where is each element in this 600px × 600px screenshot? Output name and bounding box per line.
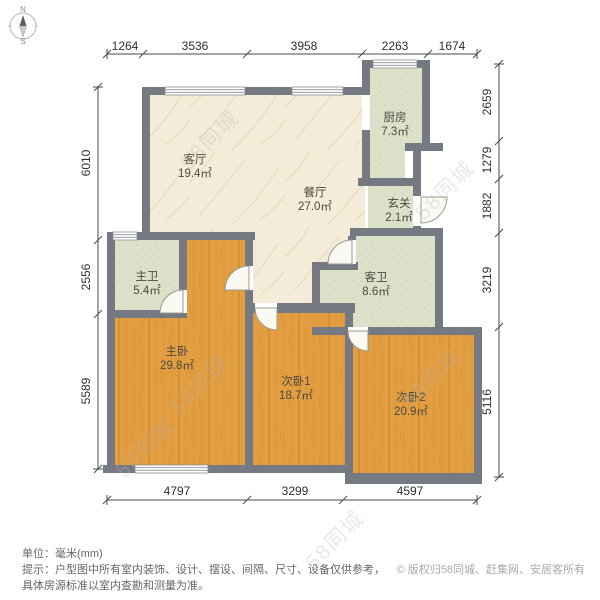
wall-segment — [362, 60, 370, 95]
dim-top-1: 1264 — [112, 39, 139, 53]
floor-kitchen-lower — [370, 143, 405, 178]
dim-bottom-2: 3299 — [282, 484, 309, 498]
floor-bedroom2 — [253, 313, 345, 465]
footer-copyright: © 版权归58同城、赶集网、安居客所有 — [397, 562, 585, 576]
compass-south-label: S — [20, 37, 25, 46]
wall-segment — [350, 228, 443, 236]
footer-unit-line: 单位：毫米(mm) — [22, 546, 103, 560]
wall-segment — [312, 327, 348, 335]
compass-icon: N S — [8, 5, 38, 46]
wall-segment — [362, 130, 370, 186]
dim-left-2: 2556 — [79, 263, 93, 290]
dim-left-1: 6010 — [79, 149, 93, 176]
floor-guest-bath-ext — [320, 270, 356, 303]
dim-left-3: 5589 — [79, 377, 93, 404]
wall-segment — [312, 262, 320, 313]
room-label-kitchen: 厨房 — [384, 111, 407, 124]
room-area-bedroom2: 18.7㎡ — [279, 389, 313, 402]
wall-segment — [413, 151, 421, 196]
kitchen-opening — [362, 95, 370, 130]
room-area-master-bath: 5.4㎡ — [133, 284, 161, 297]
dim-top-4: 2263 — [382, 39, 409, 53]
wall-segment — [368, 327, 482, 335]
window — [373, 60, 417, 68]
compass-north-label: N — [20, 5, 26, 14]
wall-segment — [245, 290, 253, 473]
dim-right-2: 1279 — [480, 146, 494, 173]
dim-right-1: 2659 — [480, 88, 494, 115]
wall-segment — [345, 473, 482, 484]
room-label-master-bedroom: 主卧 — [166, 345, 189, 358]
dim-bottom-1: 4797 — [164, 484, 191, 498]
dim-right-5: 5116 — [480, 389, 494, 415]
wall-segment — [348, 236, 356, 240]
wall-segment — [348, 264, 356, 270]
wall-segment — [245, 87, 292, 95]
dim-top-3: 3958 — [291, 39, 318, 53]
window — [165, 87, 245, 95]
floor-hallway — [253, 262, 312, 303]
room-area-master-bedroom: 29.8㎡ — [160, 359, 194, 372]
room-label-master-bath: 主卫 — [136, 270, 159, 283]
room-label-guest-bath: 客卫 — [365, 270, 388, 284]
dim-right-4: 3219 — [480, 266, 494, 293]
wall-segment — [179, 313, 187, 318]
footer-tip-line1: 提示：户型图中所有室内装饰、设计、摆设、间隔、尺寸、设备仅供参考， — [22, 562, 385, 576]
wall-segment — [142, 87, 150, 240]
dim-right-3: 1882 — [480, 192, 494, 219]
dim-top-2: 3536 — [182, 39, 209, 53]
room-label-entry: 玄关 — [388, 196, 411, 210]
room-area-dining: 27.0㎡ — [298, 200, 332, 213]
window — [135, 465, 208, 473]
window — [113, 232, 137, 240]
room-label-dining: 餐厅 — [304, 185, 327, 199]
wall-segment — [422, 60, 430, 151]
room-area-entry: 2.1㎡ — [385, 211, 413, 224]
dim-top-5: 1674 — [439, 39, 466, 53]
room-area-guest-bath: 8.6㎡ — [362, 285, 390, 298]
footer-tip-line2: 具体房源标准以室内查勘和测量为准。 — [22, 578, 209, 592]
footer: 单位：毫米(mm) 提示：户型图中所有室内装饰、设计、摆设、间隔、尺寸、设备仅供… — [22, 546, 585, 592]
wall-segment — [179, 236, 187, 290]
wall-segment — [107, 232, 115, 473]
floor-plan-page: 1264 3536 3958 2263 1674 6010 2556 5589 … — [0, 0, 600, 600]
wall-segment — [413, 226, 421, 236]
floor-plan-svg: 1264 3536 3958 2263 1674 6010 2556 5589 … — [0, 0, 600, 600]
watermark-text: 58同城 — [411, 156, 479, 224]
wall-segment — [435, 228, 443, 335]
wall-segment — [208, 465, 353, 473]
window — [292, 87, 343, 95]
wall-segment — [245, 232, 253, 266]
room-label-bedroom2: 次卧1 — [281, 374, 310, 388]
wall-segment — [137, 232, 255, 240]
dim-bottom-3: 4597 — [397, 484, 424, 498]
room-area-kitchen: 7.3㎡ — [381, 125, 409, 138]
